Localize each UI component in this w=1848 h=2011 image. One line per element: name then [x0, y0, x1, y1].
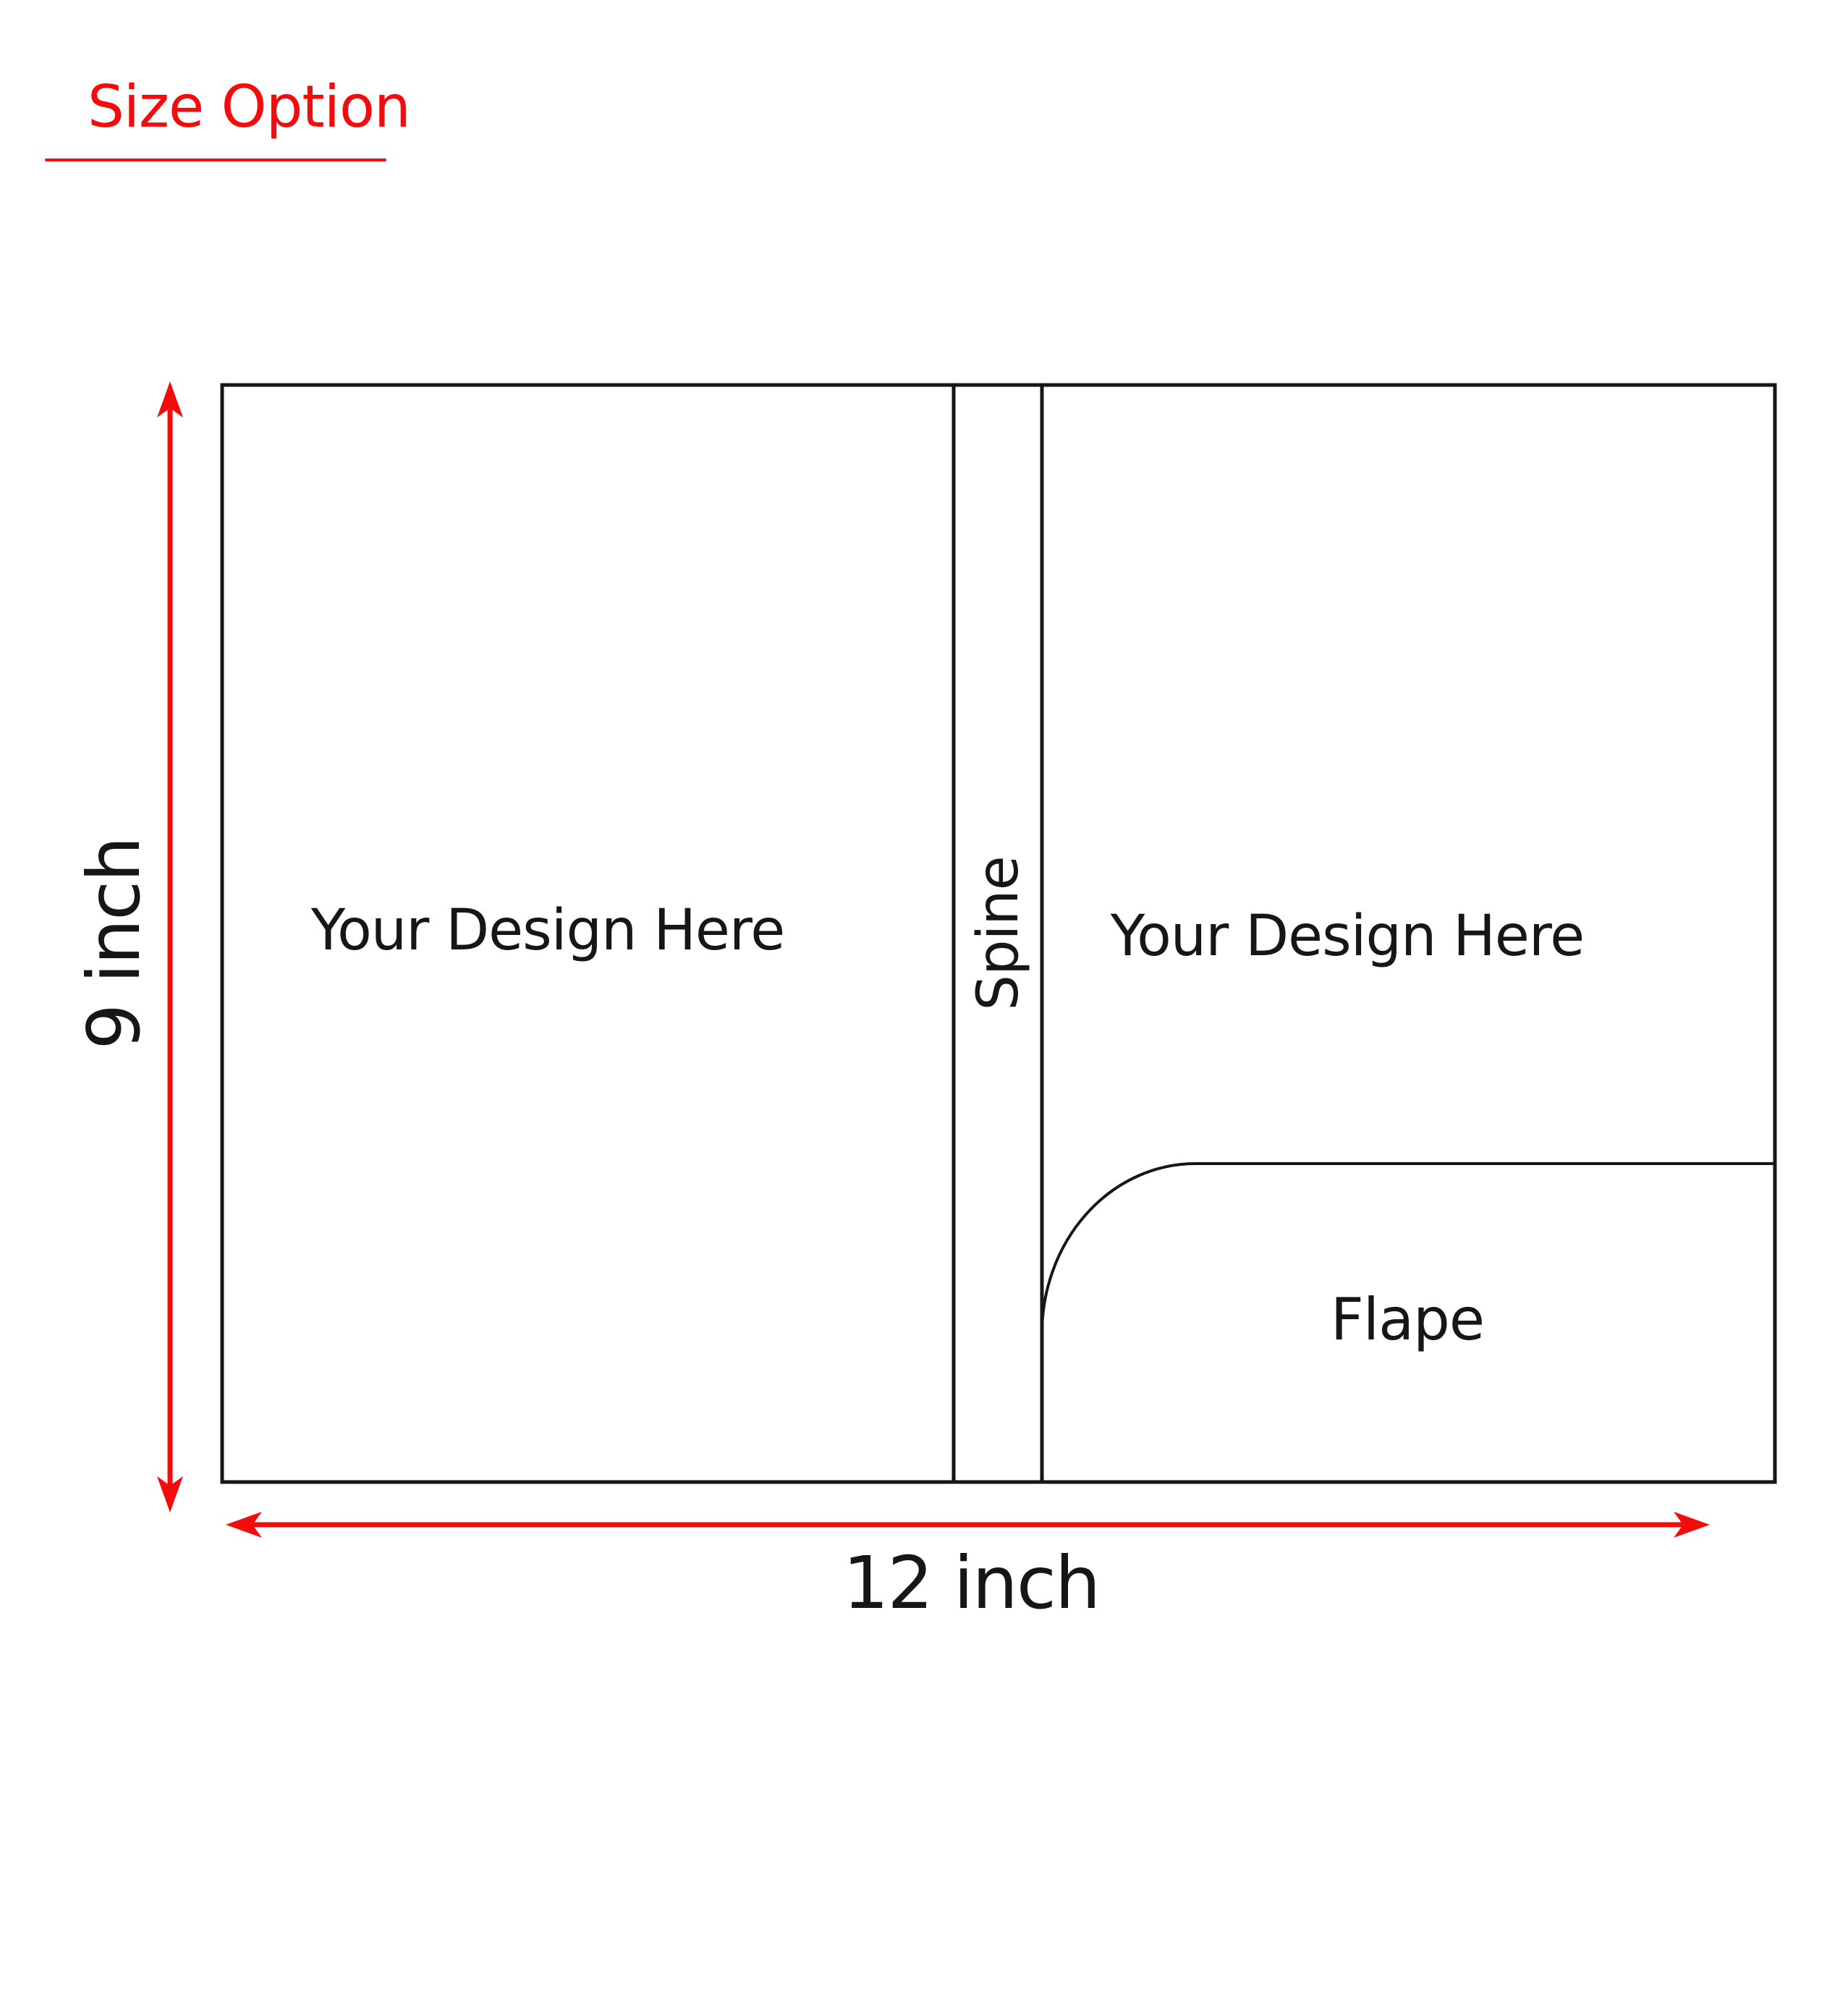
flap-label: Flape [1226, 1287, 1588, 1353]
horizontal-dimension-arrow [226, 1512, 1710, 1538]
folder-template-diagram [0, 0, 1848, 2011]
size-option-diagram-page: Size Option Your Design Here Spine Your … [0, 0, 1848, 2011]
vertical-dimension-arrow [157, 381, 183, 1512]
left-panel-design-label: Your Design Here [186, 899, 910, 964]
right-panel-design-label: Your Design Here [986, 905, 1709, 970]
height-dimension-label: 9 inch [70, 727, 157, 1161]
width-dimension-label: 12 inch [754, 1541, 1188, 1625]
